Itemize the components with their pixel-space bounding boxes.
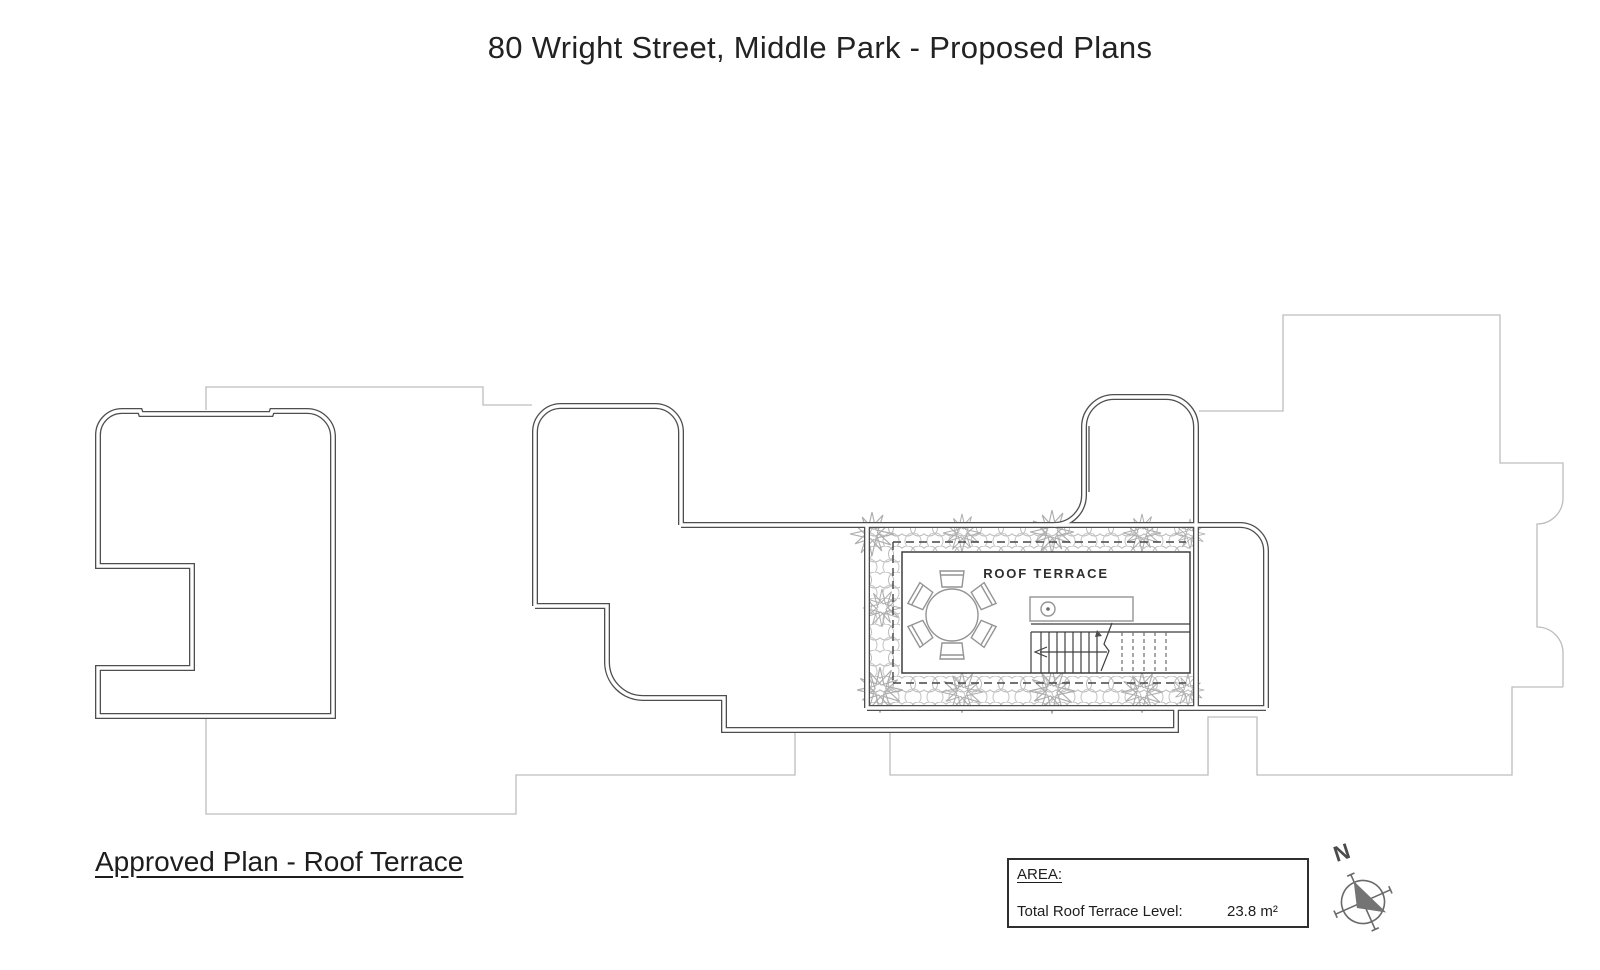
area-row-label: Total Roof Terrace Level: <box>1017 903 1183 920</box>
north-arrow <box>1323 862 1402 941</box>
area-heading: AREA: <box>1017 866 1062 883</box>
plan-sheet: 80 Wright Street, Middle Park - Proposed… <box>0 0 1600 970</box>
area-box: AREA: Total Roof Terrace Level: 23.8 m² <box>1007 858 1309 928</box>
floor-plan-drawing <box>0 0 1600 970</box>
page-title: 80 Wright Street, Middle Park - Proposed… <box>400 30 1240 66</box>
plan-caption: Approved Plan - Roof Terrace <box>95 846 463 878</box>
roof-terrace-label: ROOF TERRACE <box>946 566 1146 581</box>
area-value: 23.8 m² <box>1227 903 1278 920</box>
